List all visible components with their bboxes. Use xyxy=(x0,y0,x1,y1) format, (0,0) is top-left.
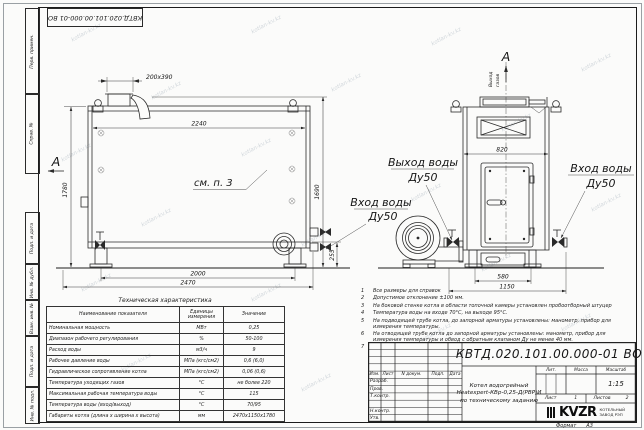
table-row: Максимальная рабочая температура воды°С1… xyxy=(47,389,285,400)
dim-height-flue: 1690 xyxy=(314,184,321,199)
frame-left-cell: Подп. и дата xyxy=(25,335,40,388)
svg-text:Вход воды: Вход воды xyxy=(350,196,412,209)
explosion-hatch xyxy=(477,117,530,138)
gas-outlet-label: газов xyxy=(496,74,501,87)
role-prov: Пров. xyxy=(368,386,397,393)
leg xyxy=(95,248,107,264)
note-item: 4Температура воды на входе 70°С, на выхо… xyxy=(358,310,634,316)
furnace-door xyxy=(481,163,534,247)
doc-number-top: КВТД.020.101.00.000-01 ВО xyxy=(48,14,142,22)
svg-text:Ду50: Ду50 xyxy=(585,177,615,190)
frame-left-label: Перв. примен. xyxy=(30,34,35,69)
lit-label: Лит. xyxy=(536,366,566,374)
leg xyxy=(289,248,301,264)
label-water-inlet-side: Вход воды Ду50 xyxy=(561,162,634,238)
dim-base-height: 255 xyxy=(329,249,336,261)
see-note-ref: см. п. 3 xyxy=(193,170,267,190)
tech-table-header-row: Наименование показателя Единицы измерени… xyxy=(47,307,285,323)
frame-left-cell: Справ. № xyxy=(25,93,40,174)
burner-flange xyxy=(273,233,295,255)
scale-value: 1:15 xyxy=(596,374,636,394)
frame-left-cell: Взам. инв. № xyxy=(25,299,40,337)
svg-text:А: А xyxy=(51,154,61,169)
col-header-data: Дата xyxy=(448,371,462,378)
role-nkontr: Н.контр. xyxy=(368,408,397,415)
col-header-podp: Подп. xyxy=(428,371,448,378)
table-row: Рабочее давление водыМПа (кгс/см2)0,6 (6… xyxy=(47,356,285,367)
table-row: Диапазон рабочего регулирования%50-100 xyxy=(47,334,285,345)
frame-left-label: Инв. № подл. xyxy=(30,389,35,421)
frame-left-cell: Подп. и дата xyxy=(25,212,40,265)
drawing-sheet: kotlan-kv.kz kotlan-kv.kz kotlan-kv.kz k… xyxy=(0,0,644,430)
pipe-stub xyxy=(81,197,88,207)
table-row: Расход водым3/ч9 xyxy=(47,345,285,356)
note-item: 2Допустимое отклонение ±100 мм. xyxy=(358,295,634,301)
note-item: 5На подводящей трубе котла, до запорной … xyxy=(358,318,634,330)
sheet-number-cell: Лист1 xyxy=(536,394,586,403)
kvzr-logo-text: KVZR xyxy=(559,406,597,419)
chimney-stub xyxy=(105,94,150,119)
dim-height-total: 1780 xyxy=(62,182,69,197)
org-name: КОТЕЛЬНЫЙ ЗАВОД РЭП xyxy=(600,408,626,417)
label-water-inlet-front: Вход воды Ду50 xyxy=(326,196,412,249)
side-dimensions: 820 580 1150 xyxy=(449,147,566,295)
frame-left-label: Инв. № дубл. xyxy=(30,266,35,297)
note-item: 3На боковой стенке котла в области топоч… xyxy=(358,303,634,309)
doc-number: КВТД.020.101.00.000-01 ВО xyxy=(462,342,636,366)
svg-text:Ду50: Ду50 xyxy=(407,171,437,184)
role-tkontr: Т.контр. xyxy=(368,393,397,400)
kvzr-logo-icon xyxy=(547,407,556,418)
massa-label: Масса xyxy=(566,366,596,374)
section-mark-front: А xyxy=(48,154,64,171)
inlet-valve-front xyxy=(310,228,331,251)
frame-left-cell: Инв. № подл. xyxy=(25,386,40,424)
col-header-izm: Изм. xyxy=(368,371,381,378)
col-header-list: Лист xyxy=(381,371,395,378)
inlet-valve-side xyxy=(552,230,567,247)
frame-left-cell: Перв. примен. xyxy=(25,8,40,95)
doc-number-top-box: КВТД.020.101.00.000-01 ВО xyxy=(47,8,143,27)
table-row: Гидравлическое сопротивление котлаМПа (к… xyxy=(47,367,285,378)
frame-left-cell: Инв. № дубл. xyxy=(25,263,40,301)
frame-left-label: Подп. и дата xyxy=(30,346,35,377)
product-name: Котел водогрейный Heatexpert-КВр-0,25-Д(… xyxy=(462,366,536,422)
blower-fan xyxy=(396,216,463,268)
tech-table-title: Техническая характеристика xyxy=(46,297,284,304)
frame-left-label: Взам. инв. № xyxy=(30,302,35,333)
frame-left-label: Подп. и дата xyxy=(30,223,35,254)
format-label: Формат А3 xyxy=(556,423,593,429)
table-row: Габариты котла (длина х ширина х высота)… xyxy=(47,411,285,422)
tech-table: Техническая характеристика Наименование … xyxy=(46,297,284,422)
svg-text:Вход воды: Вход воды xyxy=(570,162,632,175)
drain-valve xyxy=(95,232,105,250)
dim-side-base: 580 xyxy=(497,274,509,281)
frame-left-label: Справ. № xyxy=(30,122,35,144)
svg-text:А: А xyxy=(501,49,511,64)
masshtab-label: Масштаб xyxy=(596,366,636,374)
base-frame xyxy=(465,250,541,267)
note-item: 1Все размеры для справок xyxy=(358,288,634,294)
dim-length-total: 2470 xyxy=(180,280,195,287)
lifting-lug xyxy=(451,101,461,112)
tech-header-unit: Единицы измерения xyxy=(180,307,224,323)
lifting-lug xyxy=(93,100,103,112)
svg-text:Выход воды: Выход воды xyxy=(388,156,458,169)
tech-header-name: Наименование показателя xyxy=(47,307,180,323)
table-row: Номинальная мощностьМВт0,25 xyxy=(47,323,285,334)
gas-outlet-label: Выход xyxy=(488,72,494,87)
role-razrab: Разраб. xyxy=(368,378,397,385)
col-header-dokum: N докум. xyxy=(395,371,428,378)
dim-side-width-top: 820 xyxy=(496,147,508,154)
dim-leg-span: 2000 xyxy=(190,271,205,278)
tech-header-value: Значение xyxy=(224,307,285,323)
lifting-lug xyxy=(551,101,561,112)
lifting-lug xyxy=(288,100,298,112)
section-mark-side: А Выход газов xyxy=(488,49,510,87)
role-blank xyxy=(368,400,397,407)
inspection-symbol xyxy=(98,130,295,204)
door-handle xyxy=(487,200,502,205)
dim-top-width: 2240 xyxy=(191,121,206,128)
flue-outlet xyxy=(480,97,547,113)
org-cell: KVZR КОТЕЛЬНЫЙ ЗАВОД РЭП xyxy=(536,403,636,422)
table-row: Температура воды (вход/выход)°С70/95 xyxy=(47,400,285,411)
svg-text:Ду50: Ду50 xyxy=(367,210,397,223)
dim-chimney: 200х390 xyxy=(146,74,173,81)
role-utv: Утв. xyxy=(368,415,397,422)
svg-text:см. п. 3: см. п. 3 xyxy=(194,178,233,189)
table-row: Температура уходящих газов°Сне более 220 xyxy=(47,378,285,389)
sheet-count-cell: Листов2 xyxy=(586,394,636,403)
title-block: КВТД.020.101.00.000-01 ВО Изм. Лист N до… xyxy=(368,342,636,422)
